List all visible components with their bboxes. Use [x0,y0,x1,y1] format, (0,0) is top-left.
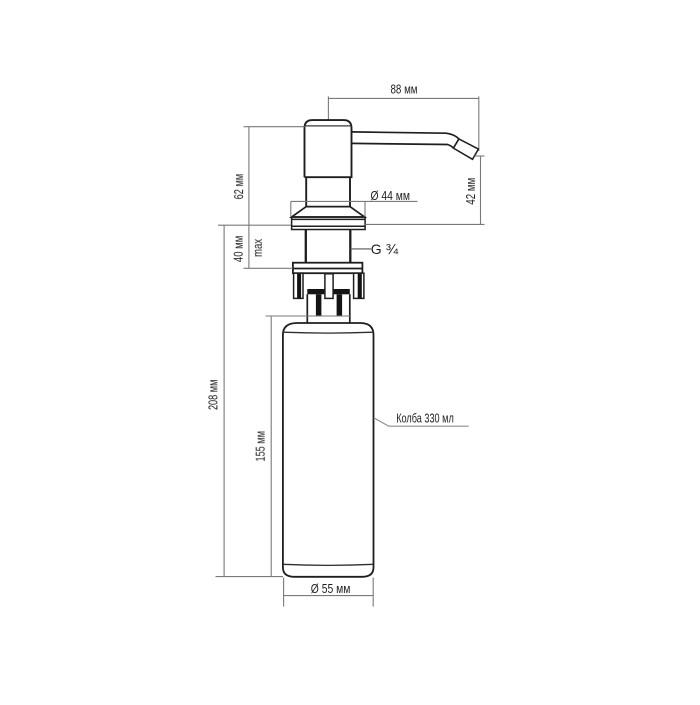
svg-text:Ø 44 мм: Ø 44 мм [371,189,411,203]
svg-text:Ø 55 мм: Ø 55 мм [311,581,351,596]
svg-text:62 мм: 62 мм [232,174,246,200]
svg-text:42 мм: 42 мм [464,178,478,205]
svg-text:Колба 330 мл: Колба 330 мл [396,412,454,426]
svg-text:G ¾: G ¾ [371,241,399,258]
svg-text:155 мм: 155 мм [254,431,268,462]
svg-text:40 мм: 40 мм [232,236,246,262]
svg-text:max: max [251,238,265,257]
svg-text:88 мм: 88 мм [391,83,418,97]
svg-text:208 мм: 208 мм [206,380,220,411]
